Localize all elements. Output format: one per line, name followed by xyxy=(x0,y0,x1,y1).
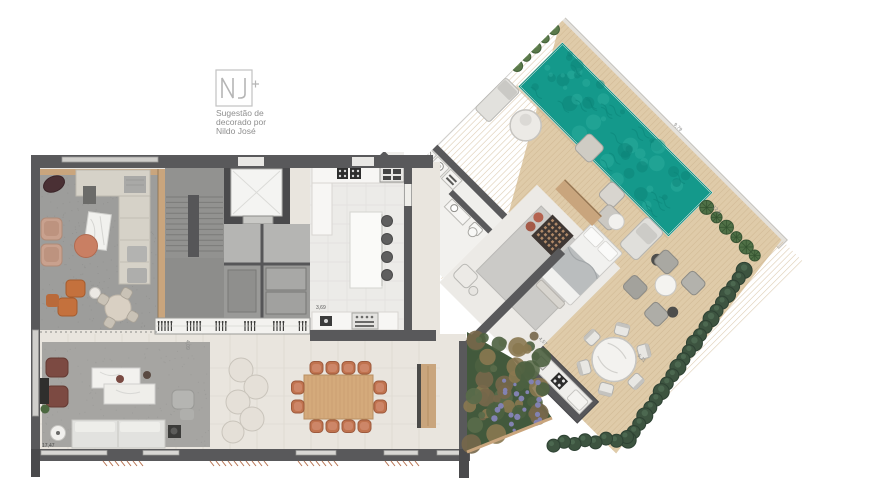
svg-text:Nildo José: Nildo José xyxy=(216,126,256,136)
svg-text:4,09: 4,09 xyxy=(184,340,190,350)
svg-text:3,69: 3,69 xyxy=(316,305,326,311)
svg-text:17,47: 17,47 xyxy=(42,443,55,449)
